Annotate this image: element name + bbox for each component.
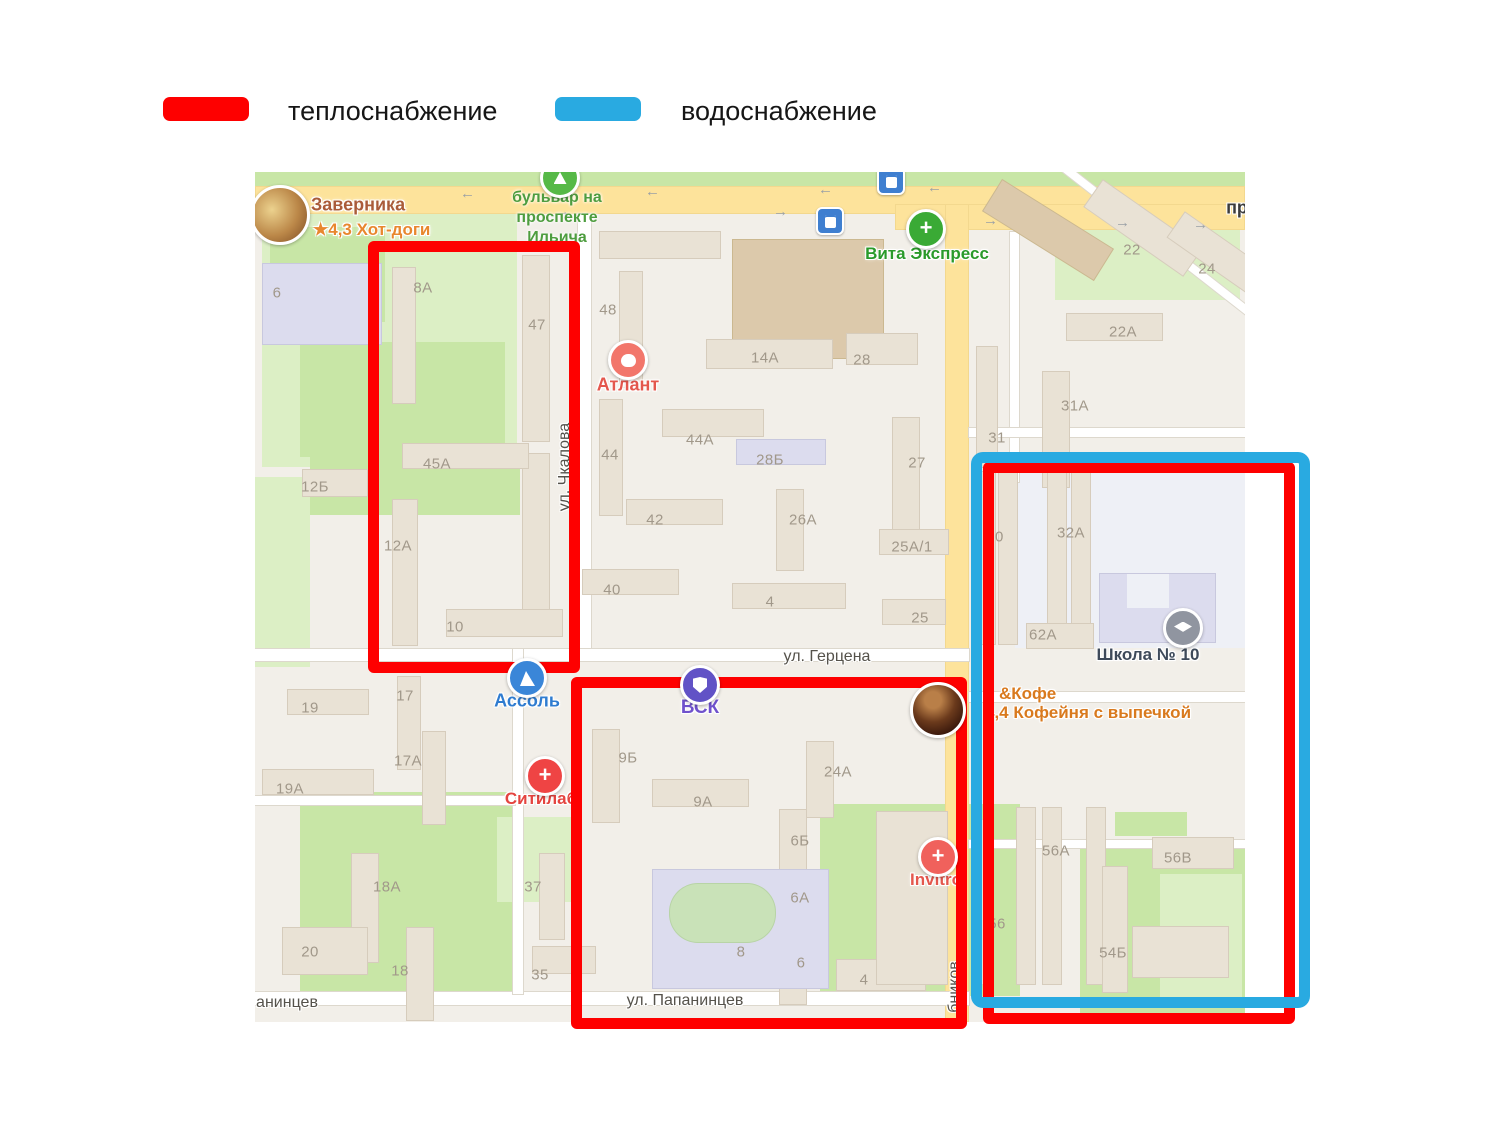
shield-icon: [693, 677, 707, 693]
building-label: 4: [766, 594, 775, 611]
building-label: 27: [908, 455, 926, 472]
road-arrow-icon: →: [1115, 214, 1130, 231]
cap-icon: [1174, 622, 1192, 635]
building-label: 19А: [276, 781, 304, 798]
zavernika-label-2: ★4,3 Хот-доги: [313, 220, 430, 240]
vsk-icon[interactable]: [680, 665, 720, 705]
coffee-bakery-icon[interactable]: [910, 682, 966, 738]
street-white: [969, 428, 1245, 437]
plus-icon: +: [920, 217, 933, 239]
building: [733, 584, 845, 608]
building-label: 18: [391, 963, 409, 980]
street-label: ул. Герцена: [784, 648, 871, 666]
street-white: [1010, 232, 1019, 482]
building-label: 14А: [751, 350, 779, 367]
invitro-icon[interactable]: +: [918, 837, 958, 877]
sail-icon: [520, 671, 535, 686]
building: [893, 418, 919, 543]
street-label: анинцев: [256, 994, 318, 1012]
road-arrow-icon: ←: [818, 181, 833, 198]
school-10-icon[interactable]: [1163, 608, 1203, 648]
legend-swatch-water: [555, 97, 641, 121]
building-label: 22А: [1109, 324, 1137, 341]
tram-stop-1-icon[interactable]: [877, 172, 905, 195]
building: [583, 570, 678, 594]
building-label: 22: [1123, 242, 1141, 259]
building-label: 42: [646, 512, 664, 529]
road-arrow-icon: →: [983, 212, 998, 229]
building: [600, 232, 720, 258]
road-arrow-icon: ←: [645, 183, 660, 200]
building-label: 20: [301, 944, 319, 961]
building-label: 25А/1: [891, 539, 932, 556]
green-area: [255, 477, 310, 667]
building-label: 12Б: [301, 479, 329, 496]
building-label: 28Б: [756, 452, 784, 469]
building-label: 31: [988, 430, 1006, 447]
building-label: 28: [853, 352, 871, 369]
building: [407, 928, 433, 1020]
building-label: 18А: [373, 879, 401, 896]
building-label: 37: [524, 879, 542, 896]
building-label: 24: [1198, 261, 1216, 278]
road-arrow-icon: →: [1193, 216, 1208, 233]
building: [423, 732, 445, 824]
annotation-box-heat-2: [571, 677, 967, 1029]
citilab-icon[interactable]: +: [525, 756, 565, 796]
legend-label-heat: теплоснабжение: [288, 96, 497, 127]
building-label: 19: [301, 700, 319, 717]
building: [977, 347, 997, 467]
building-label: 31А: [1061, 398, 1089, 415]
building-label: 6: [273, 285, 282, 302]
legend: теплоснабжение водоснабжение: [0, 0, 1500, 160]
street-label: пр: [1226, 198, 1245, 219]
zavernika-label-1: Заверника: [311, 195, 405, 216]
building: [283, 928, 367, 974]
building-public: [263, 264, 381, 344]
legend-label-water: водоснабжение: [681, 96, 877, 127]
plus-icon: +: [932, 845, 945, 867]
building-label: 40: [603, 582, 621, 599]
annotation-box-water: [971, 452, 1310, 1008]
building-label: 17: [396, 688, 414, 705]
building-label: 44: [601, 447, 619, 464]
vita-express-icon[interactable]: +: [906, 209, 946, 249]
road-arrow-icon: ←: [460, 185, 475, 202]
building: [288, 690, 368, 714]
building-label: 44А: [686, 432, 714, 449]
tree-icon: [554, 172, 567, 184]
building-label: 35: [531, 967, 549, 984]
building: [627, 500, 722, 524]
road-arrow-icon: →: [773, 203, 788, 220]
tram-stop-2-icon[interactable]: [816, 207, 844, 235]
annotation-box-heat-1: [368, 241, 580, 673]
assol-icon[interactable]: [507, 658, 547, 698]
building-label: 26А: [789, 512, 817, 529]
road-arrow-icon: ←: [927, 179, 942, 196]
plus-icon: +: [539, 764, 552, 786]
building: [540, 854, 564, 939]
building-label: 25: [911, 610, 929, 627]
tooth-icon: [621, 354, 636, 367]
legend-swatch-heat: [163, 97, 249, 121]
atlant-icon[interactable]: [608, 340, 648, 380]
building: [777, 490, 803, 570]
building-label: 17А: [394, 753, 422, 770]
building-label: 48: [599, 302, 617, 319]
